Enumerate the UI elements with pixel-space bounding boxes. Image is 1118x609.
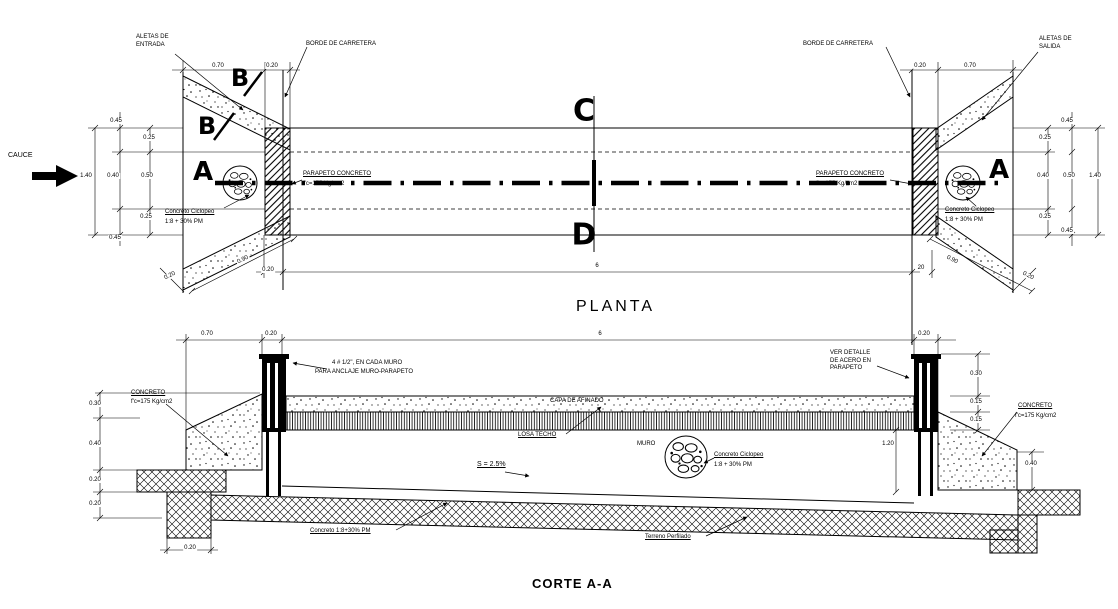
- dim: 0.45: [1060, 118, 1074, 124]
- section-title: CORTE A-A: [532, 576, 613, 591]
- dim: 20: [917, 265, 926, 271]
- dim: 0.40: [88, 441, 102, 447]
- anclaje-spec: PARA ANCLAJE MURO-PARAPETO: [315, 369, 413, 377]
- dim: 0.45: [1060, 228, 1074, 234]
- dim: 0.25: [1038, 135, 1052, 141]
- section-marker-a-right: A: [989, 154, 1009, 187]
- section-marker-b-mid: B: [198, 111, 216, 141]
- losa-techo-label: LOSA TECHO: [518, 432, 556, 440]
- parapeto-right-label: PARAPETO CONCRETO: [816, 171, 884, 179]
- dim: 0.40: [1036, 173, 1050, 179]
- ciclopeo-right-spec: 1:8 + 30% PM: [945, 217, 983, 225]
- ver-detalle-label: VER DETALLE DE ACERO EN PARAPETO: [830, 350, 871, 373]
- dim: 0.20: [264, 331, 278, 337]
- capa-afinado-label: CAPA DE AFINADO: [550, 398, 604, 406]
- cauce-label: CAUCE: [8, 152, 33, 161]
- dim: 6: [597, 331, 602, 337]
- concreto-left-label: CONCRETO: [131, 390, 165, 398]
- aletas-entrada-label: ALETAS DE ENTRADA: [136, 34, 169, 49]
- dim: 0.20: [163, 270, 178, 282]
- annotation-layer: CAUCEALETAS DE ENTRADABORDE DE CARRETERA…: [0, 0, 1118, 609]
- dim: 0.25: [142, 135, 156, 141]
- dim: 0.70: [200, 331, 214, 337]
- parapeto-left-label: PARAPETO CONCRETO: [303, 171, 371, 179]
- dim: 0.20: [917, 331, 931, 337]
- dim: 0.90: [236, 254, 251, 266]
- dim: 0.40: [1024, 461, 1038, 467]
- dim: 0.20: [913, 63, 927, 69]
- dim: 0.45: [109, 118, 123, 124]
- dim: 1.20: [881, 441, 895, 447]
- dim: 0.20: [88, 501, 102, 507]
- section-marker-b-top: B: [231, 63, 249, 93]
- dim: 0.25: [1038, 214, 1052, 220]
- section-marker-c: C: [573, 92, 595, 130]
- drawing-canvas: CAUCEALETAS DE ENTRADABORDE DE CARRETERA…: [0, 0, 1118, 609]
- dim: 0.15: [969, 417, 983, 423]
- dim: 0.20: [265, 63, 279, 69]
- muro-label: MURO: [637, 441, 655, 449]
- concreto-left-spec: f'c=175 Kg/cm2: [131, 399, 172, 407]
- ciclopeo-section-label: Concreto Ciclopeo: [714, 452, 763, 460]
- section-marker-a-left: A: [193, 156, 213, 189]
- dim: 0.90: [945, 254, 960, 266]
- dim: 0.50: [1062, 173, 1076, 179]
- dim: 6: [594, 263, 599, 269]
- terreno-label: Terreno Perfilado: [645, 534, 691, 542]
- dim: 0.20: [1021, 270, 1036, 282]
- dim: 0.25: [139, 214, 153, 220]
- concreto-base-label: Concreto 1:8+30% PM: [310, 528, 371, 536]
- concreto-right-label: CONCRETO: [1018, 403, 1052, 411]
- dim: 0.30: [88, 401, 102, 407]
- dim: 1.40: [1088, 173, 1102, 179]
- dim: 0.70: [211, 63, 225, 69]
- borde-carretera-left-label: BORDE DE CARRETERA: [306, 41, 376, 49]
- dim: 1.40: [79, 173, 93, 179]
- anclaje-label: 4 # 1/2", EN CADA MURO: [332, 360, 402, 368]
- concreto-right-spec: f'c=175 Kg/cm2: [1015, 413, 1056, 421]
- ciclopeo-section-spec: 1:8 + 30% PM: [714, 462, 752, 470]
- ciclopeo-left-spec: 1:8 + 30% PM: [165, 219, 203, 227]
- dim: 0.15: [969, 399, 983, 405]
- parapeto-right-spec: f'c=175 Kg/cm2: [816, 181, 857, 189]
- dim: 0.45: [108, 235, 122, 241]
- dim: 0.20: [183, 545, 197, 551]
- dim: 0.40: [106, 173, 120, 179]
- parapeto-left-spec: f'c=175 Kg/cm2: [303, 181, 344, 189]
- pendiente-label: S = 2.5%: [477, 461, 506, 470]
- aletas-salida-label: ALETAS DE SALIDA: [1039, 36, 1072, 51]
- dim: 0.20: [261, 267, 275, 273]
- dim: 0.50: [140, 173, 154, 179]
- ciclopeo-right-label: Concreto Ciclopeo: [945, 207, 994, 215]
- ciclopeo-left-label: Concreto Ciclopeo: [165, 209, 214, 217]
- plan-title: PLANTA: [576, 298, 655, 316]
- section-marker-d: D: [572, 216, 597, 254]
- borde-carretera-right-label: BORDE DE CARRETERA: [803, 41, 873, 49]
- dim: 0.70: [963, 63, 977, 69]
- dim: 0.20: [88, 477, 102, 483]
- dim: 0.30: [969, 371, 983, 377]
